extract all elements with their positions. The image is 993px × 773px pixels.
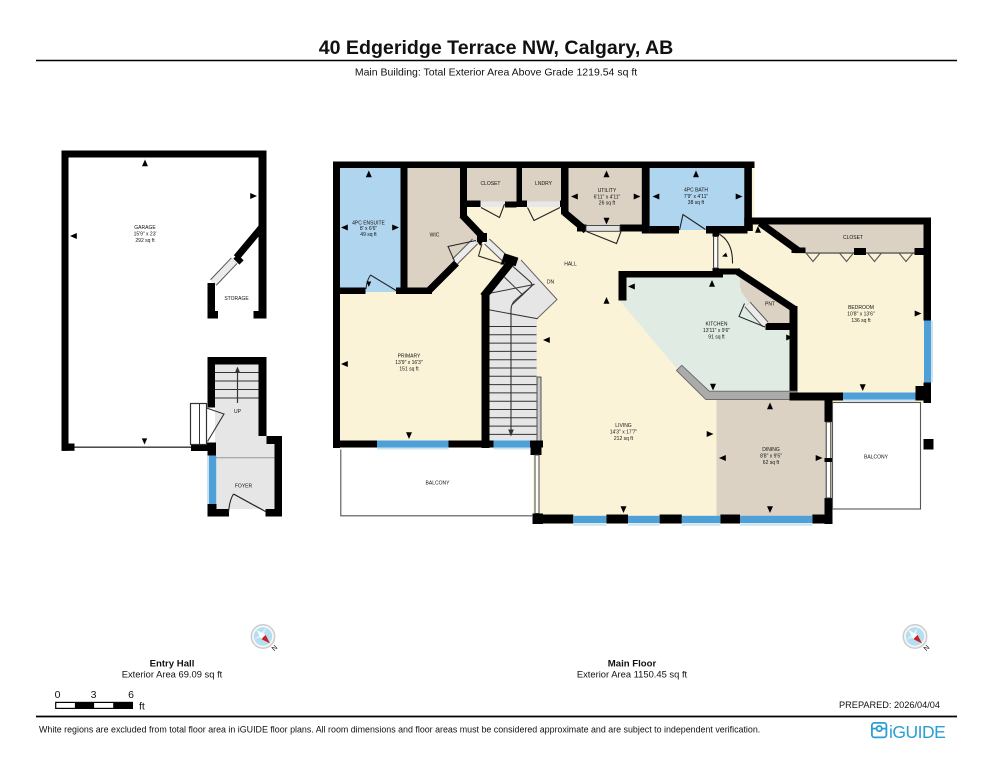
svg-text:UP: UP <box>234 409 242 415</box>
svg-text:WIC: WIC <box>430 233 440 239</box>
svg-text:PREPARED: 2026/04/04: PREPARED: 2026/04/04 <box>839 700 940 710</box>
svg-text:13'9" x 16'3": 13'9" x 16'3" <box>395 360 423 366</box>
svg-text:3: 3 <box>91 689 97 701</box>
svg-text:292 sq ft: 292 sq ft <box>135 238 155 244</box>
svg-text:14'3" x 17'7": 14'3" x 17'7" <box>610 430 638 436</box>
svg-text:ft: ft <box>139 701 145 713</box>
svg-text:8'8" x 9'5": 8'8" x 9'5" <box>760 454 782 460</box>
svg-text:136 sq ft: 136 sq ft <box>851 318 871 324</box>
svg-text:0: 0 <box>55 689 61 701</box>
svg-text:GARAGE: GARAGE <box>134 225 156 231</box>
svg-text:FOYER: FOYER <box>235 484 253 490</box>
svg-text:LNDRY: LNDRY <box>535 181 553 187</box>
svg-text:DN: DN <box>547 280 555 286</box>
svg-text:UTILITY: UTILITY <box>598 188 617 194</box>
svg-text:BALCONY: BALCONY <box>426 481 451 487</box>
svg-text:212 sq ft: 212 sq ft <box>614 436 634 442</box>
svg-text:91 sq ft: 91 sq ft <box>708 335 725 341</box>
svg-text:KITCHEN: KITCHEN <box>706 322 728 328</box>
svg-text:LIVING: LIVING <box>615 423 632 429</box>
svg-text:10'8" x 13'6": 10'8" x 13'6" <box>847 312 875 318</box>
svg-text:BEDROOM: BEDROOM <box>848 305 874 311</box>
svg-text:7'9" x 4'11": 7'9" x 4'11" <box>684 194 708 200</box>
svg-text:CLOSET: CLOSET <box>480 181 500 187</box>
svg-text:BALCONY: BALCONY <box>864 455 889 461</box>
svg-text:iGUIDE: iGUIDE <box>889 722 945 742</box>
svg-text:26 sq ft: 26 sq ft <box>599 201 616 207</box>
svg-text:PRIMARY: PRIMARY <box>398 354 421 360</box>
svg-text:Exterior Area 1150.45 sq ft: Exterior Area 1150.45 sq ft <box>577 669 688 680</box>
svg-text:4PC BATH: 4PC BATH <box>684 188 708 194</box>
svg-text:Main Building: Total Exterior: Main Building: Total Exterior Area Above… <box>355 66 637 78</box>
svg-text:6: 6 <box>128 689 134 701</box>
svg-text:STORAGE: STORAGE <box>224 296 249 302</box>
svg-text:HALL: HALL <box>564 262 577 268</box>
svg-text:49 sq ft: 49 sq ft <box>360 232 377 238</box>
svg-text:CLOSET: CLOSET <box>843 235 863 241</box>
svg-text:13'11" x 9'6": 13'11" x 9'6" <box>703 328 730 334</box>
svg-text:62 sq ft: 62 sq ft <box>763 460 780 466</box>
svg-text:40 Edgeridge Terrace NW, Calga: 40 Edgeridge Terrace NW, Calgary, AB <box>319 37 674 59</box>
svg-text:15'9" x 23': 15'9" x 23' <box>134 232 157 238</box>
svg-text:38 sq ft: 38 sq ft <box>688 200 705 206</box>
svg-text:DINING: DINING <box>762 447 780 453</box>
svg-text:Exterior Area 69.09 sq ft: Exterior Area 69.09 sq ft <box>122 669 223 680</box>
svg-text:6'11" x 4'11": 6'11" x 4'11" <box>594 194 621 200</box>
svg-text:White regions are excluded fro: White regions are excluded from total fl… <box>39 725 760 735</box>
svg-text:PNT: PNT <box>765 302 775 308</box>
svg-text:151 sq ft: 151 sq ft <box>399 367 419 373</box>
